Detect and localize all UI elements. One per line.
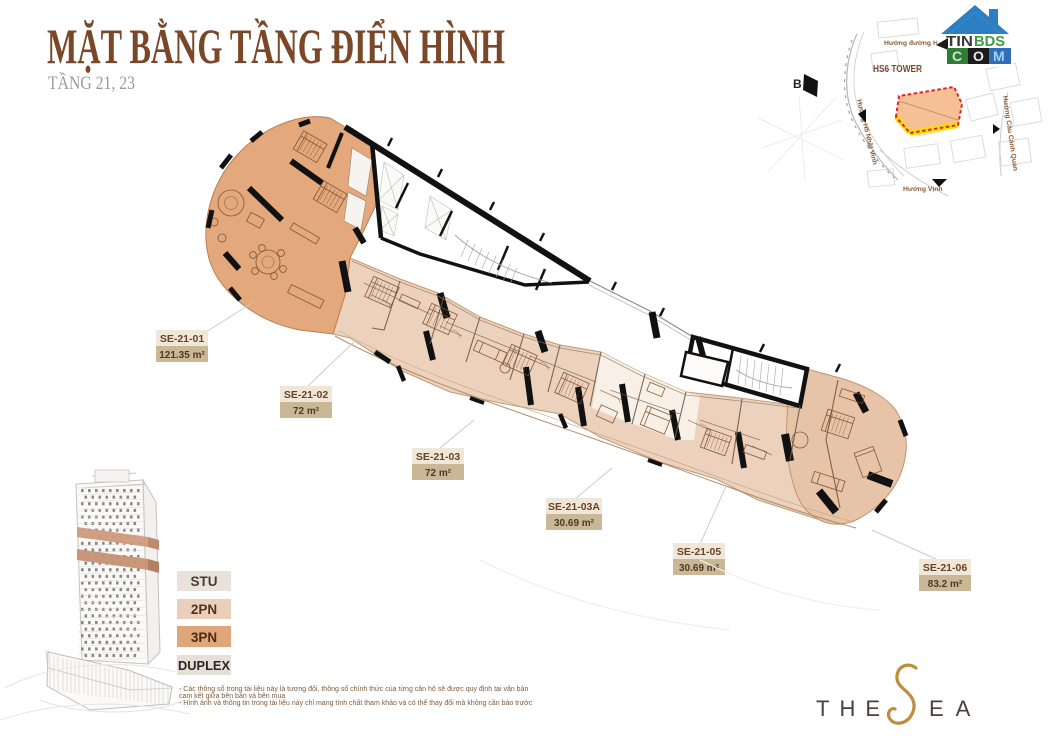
svg-text:HS6 TOWER: HS6 TOWER xyxy=(873,64,923,75)
svg-text:72 m²: 72 m² xyxy=(425,468,452,479)
svg-text:3PN: 3PN xyxy=(191,630,217,645)
svg-text:TẦNG 21, 23: TẦNG 21, 23 xyxy=(48,72,135,94)
svg-text:B: B xyxy=(793,77,802,91)
svg-text:83.2 m²: 83.2 m² xyxy=(928,579,963,590)
svg-text:30.69 m²: 30.69 m² xyxy=(679,563,720,574)
svg-text:THE: THE xyxy=(816,696,890,721)
svg-text:SE-21-02: SE-21-02 xyxy=(284,389,329,401)
svg-text:- Các thông số trong tài liệu: - Các thông số trong tài liệu này là tươ… xyxy=(179,684,528,693)
svg-text:SE-21-03: SE-21-03 xyxy=(416,451,461,463)
svg-text:SE-21-05: SE-21-05 xyxy=(677,546,722,558)
svg-text:DUPLEX: DUPLEX xyxy=(178,659,231,673)
svg-text:SE-21-06: SE-21-06 xyxy=(923,562,968,574)
svg-text:cam kết giữa bên bán và bên mu: cam kết giữa bên bán và bên mua xyxy=(179,691,285,700)
svg-text:O: O xyxy=(973,48,984,64)
svg-text:121.35 m²: 121.35 m² xyxy=(159,350,205,361)
svg-text:M: M xyxy=(993,48,1005,64)
svg-text:MẶT BẰNG TẦNG ĐIỂN HÌNH: MẶT BẰNG TẦNG ĐIỂN HÌNH xyxy=(47,17,505,74)
svg-text:2PN: 2PN xyxy=(191,602,217,617)
svg-text:72 m²: 72 m² xyxy=(293,406,320,417)
svg-text:- Hình ảnh và thông tin trong: - Hình ảnh và thông tin trong tài liệu n… xyxy=(179,698,533,707)
svg-text:30.69 m²: 30.69 m² xyxy=(554,518,595,529)
svg-text:Hướng Vịnh: Hướng Vịnh xyxy=(903,186,943,193)
svg-text:SE-21-01: SE-21-01 xyxy=(160,333,205,345)
svg-text:C: C xyxy=(952,48,962,64)
svg-text:SE-21-03A: SE-21-03A xyxy=(548,501,600,513)
svg-text:EA: EA xyxy=(929,696,982,721)
svg-text:STU: STU xyxy=(191,574,218,589)
